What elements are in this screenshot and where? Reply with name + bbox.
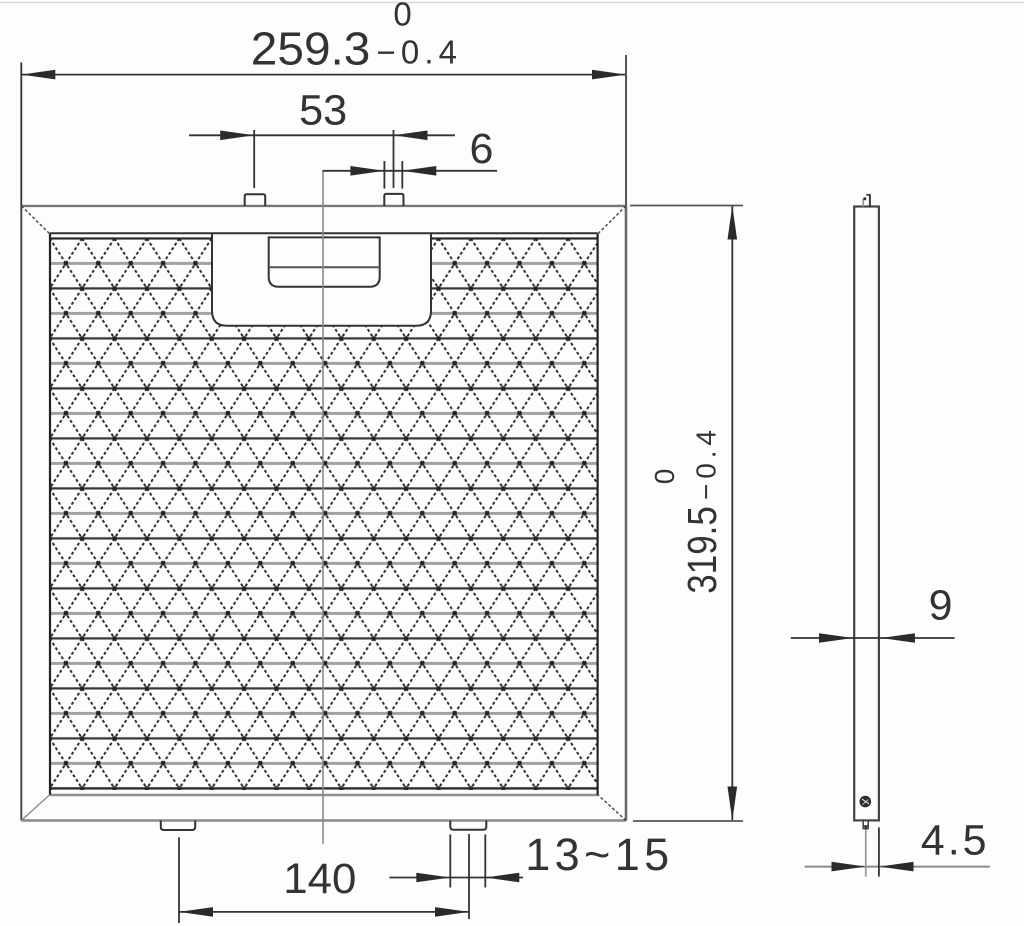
- svg-text:319.5: 319.5: [679, 506, 725, 594]
- svg-text:−0.4: −0.4: [691, 430, 722, 500]
- svg-text:13~15: 13~15: [525, 829, 669, 880]
- svg-text:4.5: 4.5: [921, 816, 987, 864]
- svg-text:140: 140: [283, 855, 356, 903]
- svg-text:53: 53: [299, 87, 347, 135]
- svg-text:9: 9: [929, 582, 953, 630]
- svg-text:−0.4: −0.4: [377, 34, 458, 71]
- svg-text:0: 0: [649, 469, 680, 485]
- svg-text:0: 0: [393, 0, 411, 33]
- svg-text:6: 6: [470, 125, 494, 173]
- svg-text:259.3: 259.3: [251, 23, 371, 75]
